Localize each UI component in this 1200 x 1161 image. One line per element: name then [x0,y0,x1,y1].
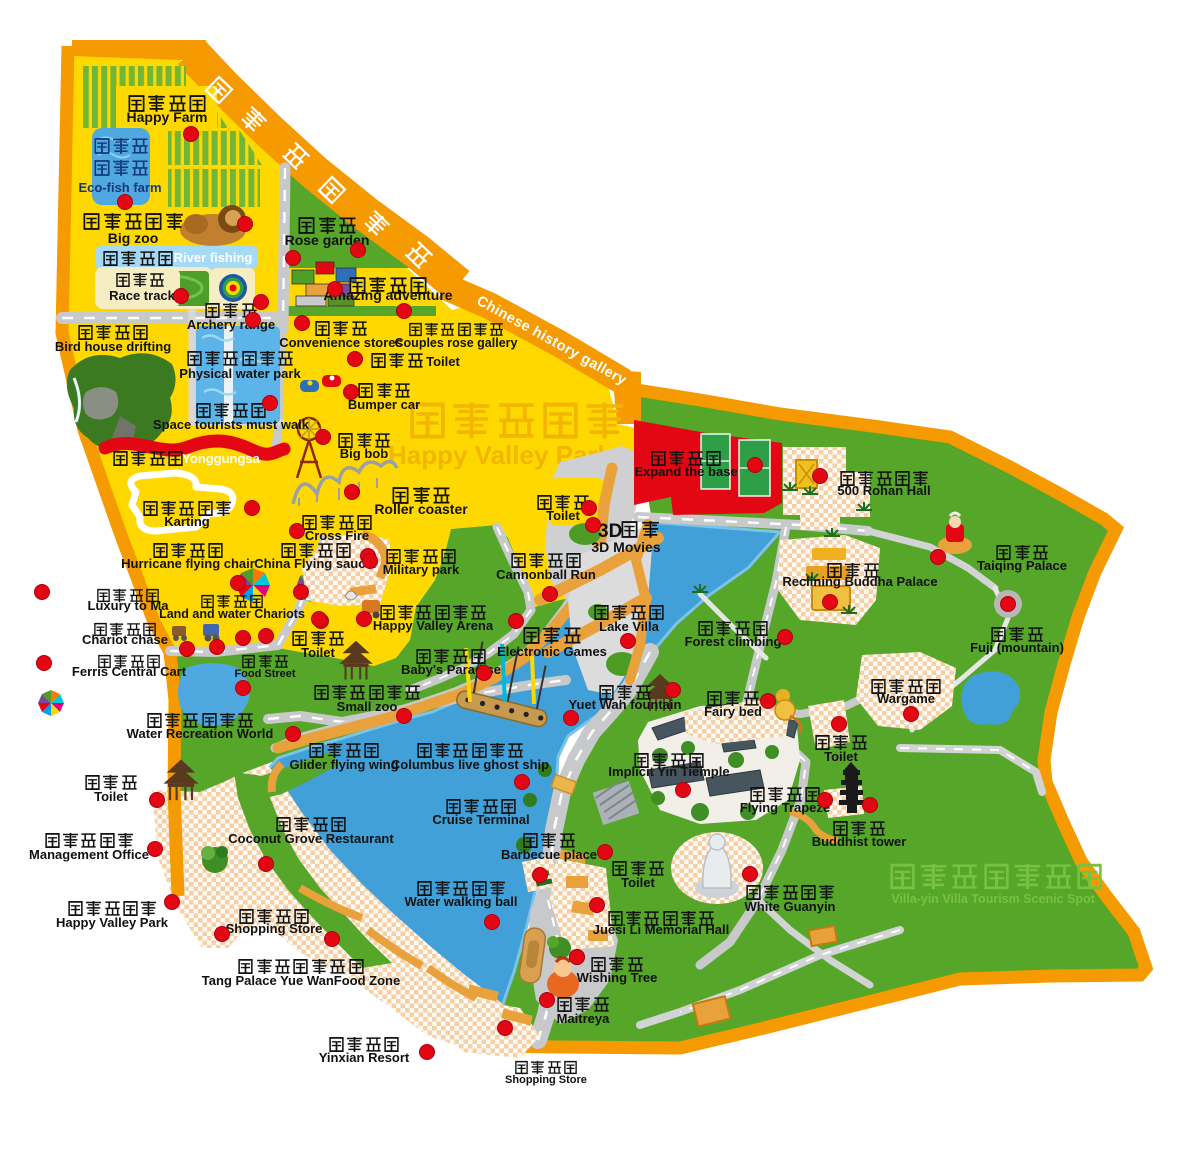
svg-text:Toilet: Toilet [824,749,858,764]
svg-text:Military park: Military park [383,562,460,577]
svg-text:Roller coaster: Roller coaster [374,501,468,517]
svg-text:Fuji (mountain): Fuji (mountain) [970,640,1064,655]
svg-text:Buddhist tower: Buddhist tower [812,834,907,849]
svg-text:Expand the base: Expand the base [634,464,737,479]
svg-text:Taiqing Palace: Taiqing Palace [977,558,1067,573]
svg-text:River fishing: River fishing [174,250,253,265]
svg-text:Bumper car: Bumper car [348,397,420,412]
svg-text:Land and water Chariots: Land and water Chariots [159,607,305,621]
svg-text:Happy Valley Arena: Happy Valley Arena [373,618,494,633]
svg-text:Physical water park: Physical water park [179,366,301,381]
svg-text:Columbus live ghost ship: Columbus live ghost ship [391,757,549,772]
svg-text:Reclining Buddha Palace: Reclining Buddha Palace [782,574,937,589]
svg-text:Shopping Store: Shopping Store [505,1074,587,1086]
svg-text:Electronic Games: Electronic Games [497,644,607,659]
svg-text:Happy Farm: Happy Farm [127,109,208,125]
svg-text:Cannonball Run: Cannonball Run [496,567,596,582]
svg-text:Yonggungsa: Yonggungsa [182,451,261,466]
svg-text:Barbecue place: Barbecue place [501,847,597,862]
svg-text:Lake Villa: Lake Villa [599,619,660,634]
svg-text:Toilet: Toilet [546,508,580,523]
svg-text:Shopping Store: Shopping Store [226,921,323,936]
svg-text:Management Office: Management Office [29,847,149,862]
svg-text:Archery range: Archery range [187,317,275,332]
svg-text:Coconut Grove Restaurant: Coconut Grove Restaurant [228,831,394,846]
svg-text:Implicit Yin Tiemple: Implicit Yin Tiemple [608,764,729,779]
svg-text:Food Street: Food Street [234,668,295,680]
svg-text:Yinxian Resort: Yinxian Resort [319,1050,410,1065]
svg-text:Cross Fire: Cross Fire [305,528,369,543]
svg-text:China Flying saucer: China Flying saucer [254,556,378,571]
svg-text:Space tourists must walk: Space tourists must walk [153,417,310,432]
svg-text:Flying Trapeze: Flying Trapeze [740,800,830,815]
svg-text:500 Rohan Hall: 500 Rohan Hall [837,483,930,498]
svg-text:3D Movies: 3D Movies [591,539,660,555]
svg-text:Water Recreation World: Water Recreation World [127,726,274,741]
svg-text:Bird house drifting: Bird house drifting [55,339,171,354]
svg-text:Glider flying wing: Glider flying wing [289,757,398,772]
svg-text:Luxury to Ma: Luxury to Ma [88,598,170,613]
svg-text:White Guanyin: White Guanyin [745,899,836,914]
svg-text:Toilet: Toilet [426,354,460,369]
svg-text:Karting: Karting [164,514,210,529]
svg-text:Toilet: Toilet [301,645,335,660]
svg-text:Race track: Race track [109,288,176,303]
svg-text:Ferris Central Cart: Ferris Central Cart [72,664,187,679]
svg-text:Forest climbing: Forest climbing [685,634,782,649]
svg-text:Eco-fish farm: Eco-fish farm [78,180,161,195]
svg-text:Maitreya: Maitreya [557,1011,611,1026]
svg-text:Big zoo: Big zoo [108,230,159,246]
svg-text:Water walking ball: Water walking ball [405,894,518,909]
svg-text:Small zoo: Small zoo [337,699,398,714]
svg-text:Big bob: Big bob [340,446,388,461]
svg-text:Cruise Terminal: Cruise Terminal [432,812,529,827]
svg-text:Tang Palace Yue WanFood Zone: Tang Palace Yue WanFood Zone [202,973,400,988]
svg-text:Fairy bed: Fairy bed [704,704,762,719]
svg-text:Happy Valley Park: Happy Valley Park [56,915,169,930]
svg-text:Chariot chase: Chariot chase [82,632,168,647]
svg-text:Toilet: Toilet [94,789,128,804]
svg-text:Juesi Li Memorial Hall: Juesi Li Memorial Hall [593,922,730,937]
svg-text:Hurricane flying chair: Hurricane flying chair [121,556,255,571]
svg-text:Villa-yin Villa Tourism Scenic: Villa-yin Villa Tourism Scenic Spot [891,892,1095,906]
svg-text:Toilet: Toilet [621,875,655,890]
svg-text:Wishing Tree: Wishing Tree [577,970,658,985]
svg-text:Couples rose gallery: Couples rose gallery [395,336,518,350]
svg-text:Wargame: Wargame [877,691,935,706]
svg-text:Yuet Wah fountain: Yuet Wah fountain [569,697,682,712]
svg-text:Convenience stores: Convenience stores [279,335,403,350]
